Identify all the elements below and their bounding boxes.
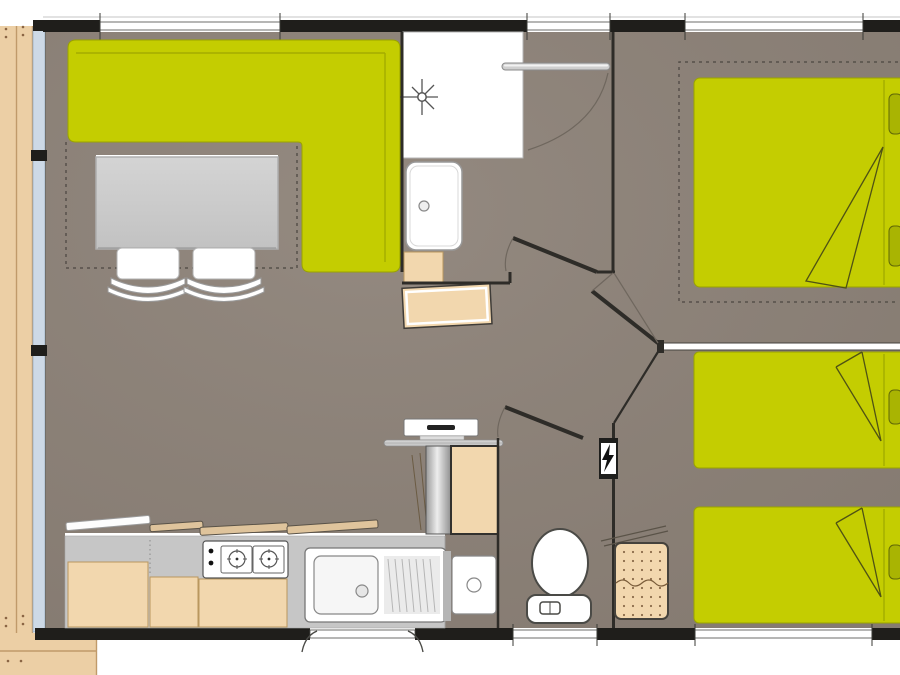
vanity-cabinet (404, 252, 443, 283)
glazed-front (31, 20, 47, 632)
chair (184, 248, 264, 302)
stove-knob (209, 561, 214, 566)
dining-table (96, 155, 278, 249)
floor-plan-canvas (0, 0, 900, 675)
window (302, 630, 423, 652)
glass-mullion (31, 150, 47, 161)
single-bed (694, 352, 900, 468)
toilet (527, 529, 591, 623)
stool-texture (617, 545, 666, 617)
basin-drain (419, 201, 429, 211)
pillow (889, 94, 900, 134)
pillow (889, 226, 900, 266)
sink-drain (356, 585, 368, 597)
fridge (451, 446, 498, 534)
hand-basin (443, 551, 496, 621)
washbasin (406, 162, 462, 250)
pillow (889, 390, 900, 424)
stove (203, 541, 288, 578)
pillow (889, 545, 900, 579)
double-bed (694, 78, 900, 287)
bedroom-divider-wall (661, 343, 900, 350)
kitchen-cabinet (150, 577, 198, 627)
glass-wall (33, 28, 45, 632)
single-bed (694, 507, 900, 623)
sink-basin (314, 556, 378, 614)
kitchen-cabinet (68, 562, 148, 627)
basin-drain (467, 578, 481, 592)
electrical-panel (600, 439, 617, 478)
kitchen-cabinet (199, 579, 287, 627)
sink (305, 548, 446, 622)
shelf-slot (427, 425, 455, 430)
glass-mullion (31, 345, 47, 356)
stove-knob (209, 549, 214, 554)
storage-chest (402, 284, 492, 329)
bedroom-double (679, 62, 900, 302)
floor-plan (0, 0, 900, 675)
chair (108, 248, 188, 302)
water-heater (426, 446, 451, 534)
